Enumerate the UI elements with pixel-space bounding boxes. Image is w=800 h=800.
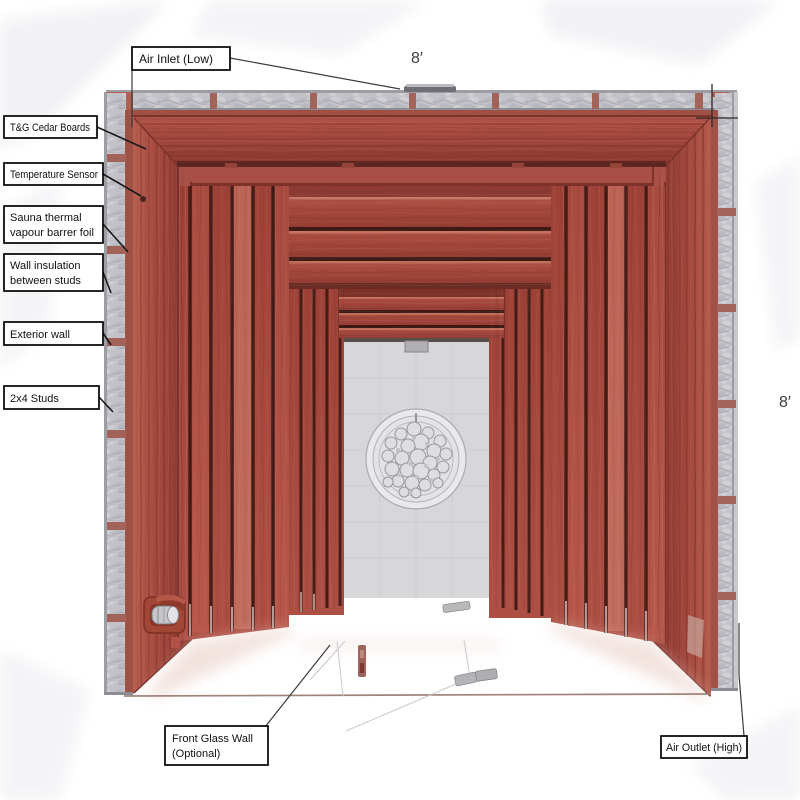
svg-text:Front Glass Wall: Front Glass Wall xyxy=(172,733,253,745)
svg-text:Exterior wall: Exterior wall xyxy=(10,329,70,341)
svg-text:Sauna thermal: Sauna thermal xyxy=(10,212,82,224)
svg-text:Temperature Sensor: Temperature Sensor xyxy=(10,169,98,181)
svg-text:between studs: between studs xyxy=(10,275,81,287)
svg-text:Air Outlet (High): Air Outlet (High) xyxy=(666,742,742,754)
svg-text:Wall insulation: Wall insulation xyxy=(10,260,81,272)
svg-text:Air Inlet (Low): Air Inlet (Low) xyxy=(139,52,213,66)
svg-text:2x4 Studs: 2x4 Studs xyxy=(10,393,59,405)
svg-text:8′: 8′ xyxy=(411,50,423,67)
svg-text:T&G Cedar Boards: T&G Cedar Boards xyxy=(10,122,90,134)
svg-text:8′: 8′ xyxy=(779,394,791,411)
svg-text:vapour barrer foil: vapour barrer foil xyxy=(10,227,94,239)
svg-text:(Optional): (Optional) xyxy=(172,748,220,760)
